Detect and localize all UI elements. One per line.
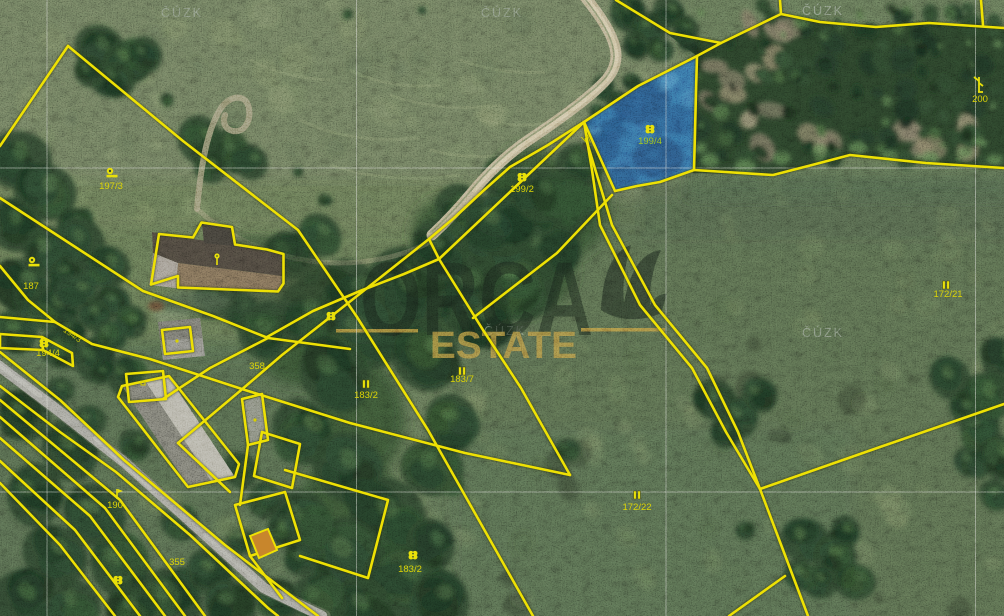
- svg-text:358: 358: [249, 361, 265, 372]
- svg-text:355: 355: [169, 557, 185, 568]
- svg-text:183/2: 183/2: [354, 390, 378, 401]
- svg-text:187: 187: [23, 281, 39, 292]
- svg-text:183/7: 183/7: [450, 374, 474, 385]
- svg-text:172/22: 172/22: [622, 502, 651, 513]
- svg-text:194/4: 194/4: [36, 348, 60, 359]
- svg-text:199/2: 199/2: [510, 184, 534, 195]
- svg-text:172/21: 172/21: [933, 289, 962, 300]
- svg-text:190: 190: [107, 500, 123, 511]
- svg-text:200: 200: [972, 94, 988, 105]
- svg-text:183/2: 183/2: [398, 564, 422, 575]
- svg-text:197/3: 197/3: [99, 181, 123, 192]
- svg-text:199/4: 199/4: [638, 136, 662, 147]
